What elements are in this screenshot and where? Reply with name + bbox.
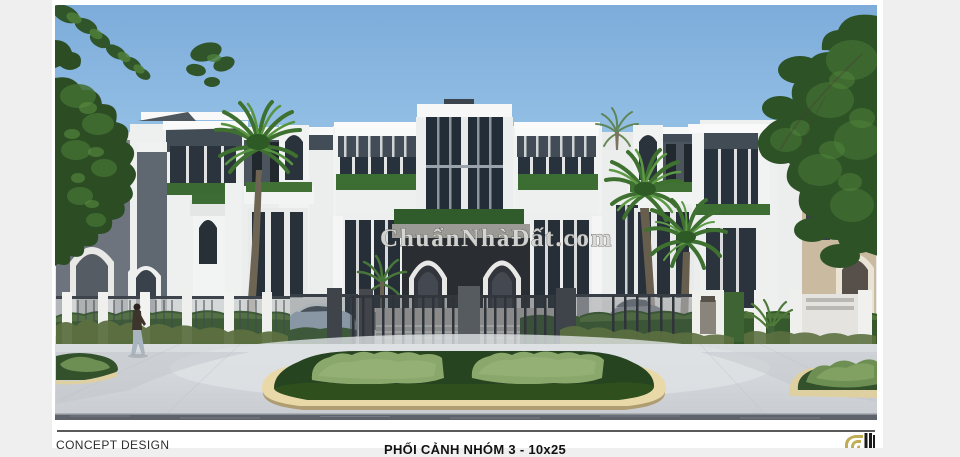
svg-text:ChuẩnNhàĐất.com: ChuẩnNhàĐất.com [380, 225, 613, 252]
